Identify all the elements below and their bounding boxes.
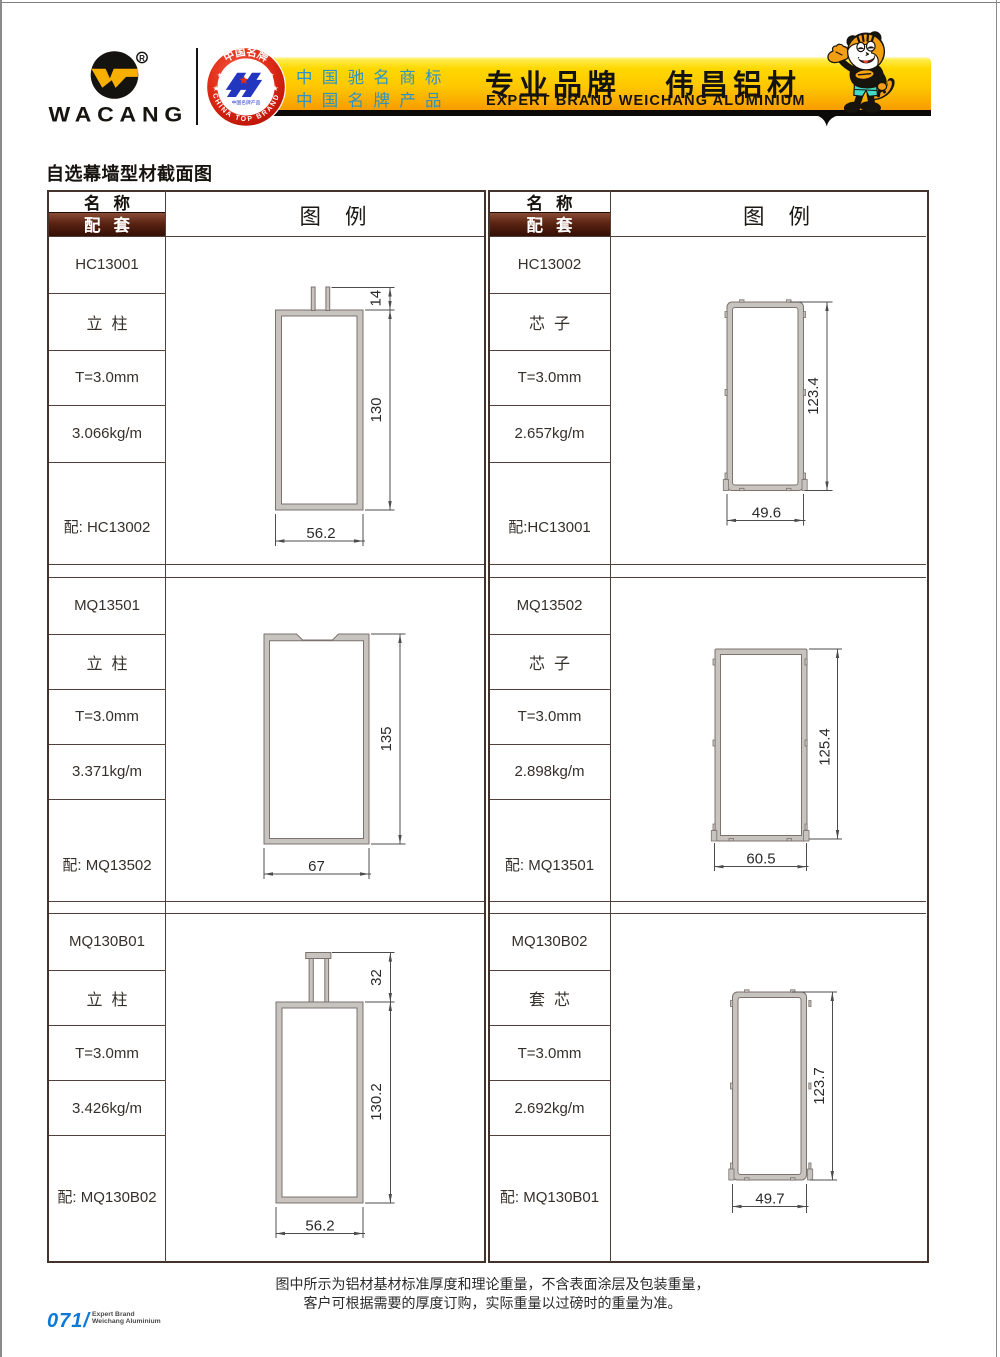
svg-text:60.5: 60.5 [746, 851, 775, 868]
svg-text:123.7: 123.7 [811, 1067, 828, 1105]
svg-text:130: 130 [368, 397, 385, 422]
svg-text:135: 135 [378, 726, 395, 751]
svg-text:32: 32 [368, 969, 385, 986]
svg-text:123.4: 123.4 [805, 377, 822, 415]
svg-text:49.6: 49.6 [752, 504, 781, 521]
svg-text:49.7: 49.7 [755, 1191, 784, 1208]
svg-text:130.2: 130.2 [368, 1083, 385, 1121]
svg-text:125.4: 125.4 [817, 728, 834, 766]
svg-text:14: 14 [368, 290, 385, 307]
svg-text:67: 67 [308, 858, 325, 875]
svg-text:56.2: 56.2 [305, 1218, 334, 1235]
svg-text:56.2: 56.2 [306, 525, 335, 542]
